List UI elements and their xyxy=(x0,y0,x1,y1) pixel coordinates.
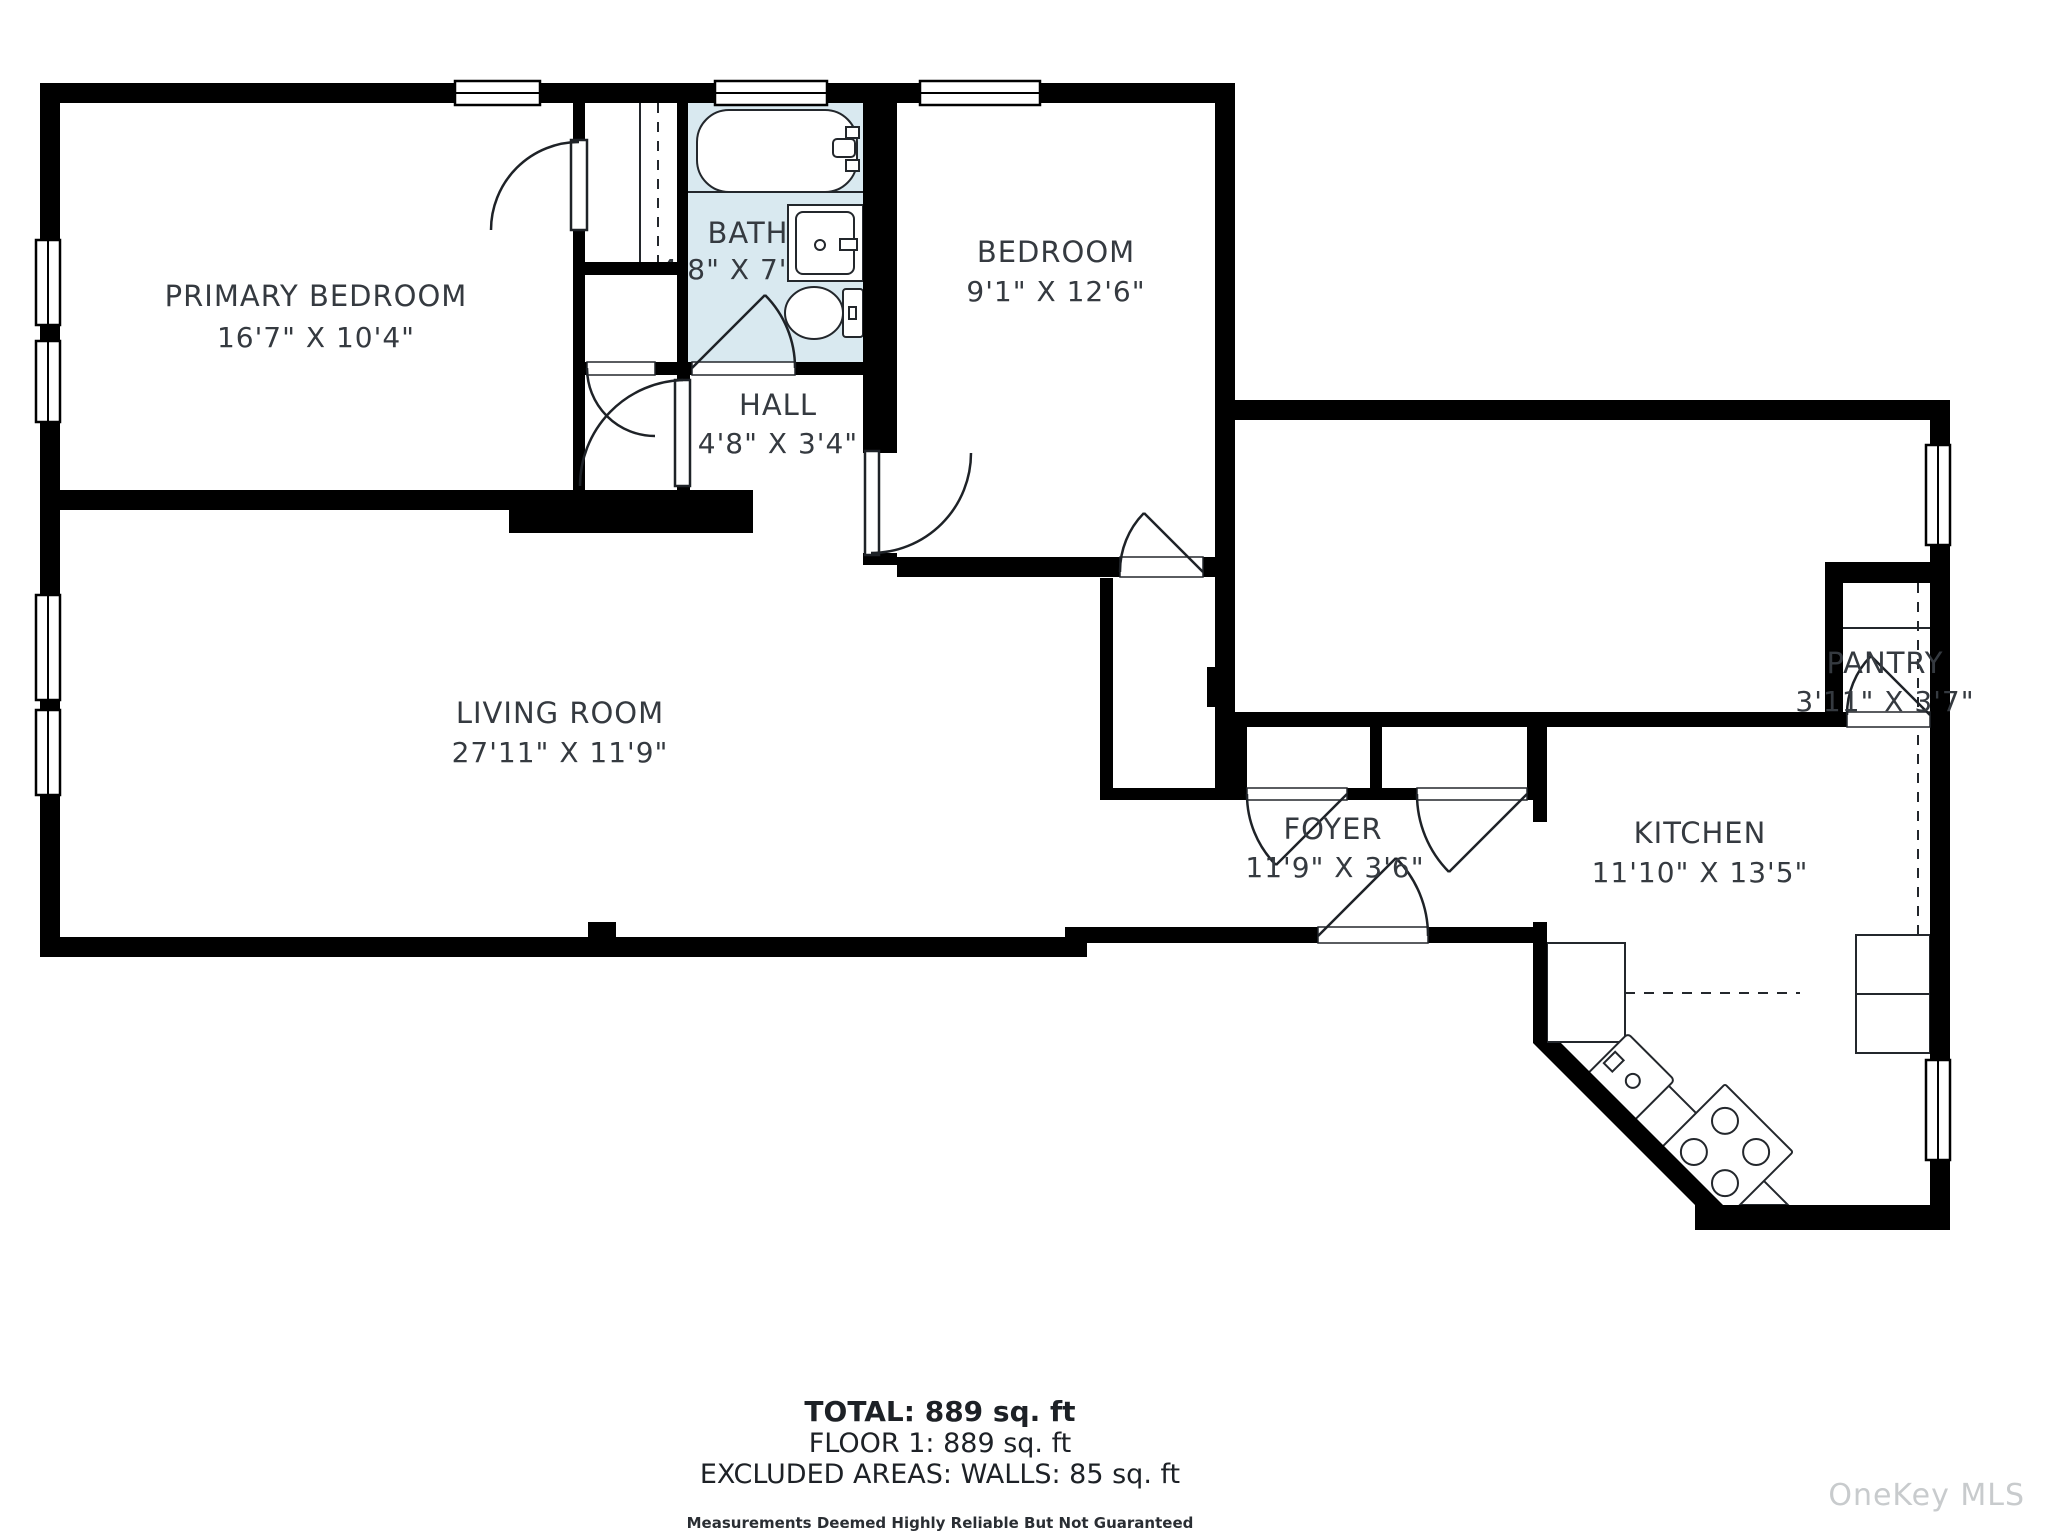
door-leaf-foyer-closet-b xyxy=(1449,794,1527,872)
door-leaf-primary-bedroom xyxy=(675,380,690,486)
room-dims-bedroom: 9'1" X 12'6" xyxy=(966,275,1145,308)
bathroom-sink-icon xyxy=(788,205,863,281)
door-threshold-hall-closet xyxy=(587,362,655,375)
floor-plan: 4'8" X 7'0" xyxy=(0,0,2048,1536)
room-label-bath: BATH xyxy=(707,216,788,250)
bathtub-icon xyxy=(697,110,859,192)
floor-plan-page: 4'8" X 7'0" xyxy=(0,0,2048,1536)
room-dims-hall: 4'8" X 3'4" xyxy=(698,427,858,460)
room-dims-living-room: 27'11" X 11'9" xyxy=(452,736,669,769)
door-leaf-bedroom xyxy=(865,451,879,555)
room-labels: PRIMARY BEDROOM 16'7" X 10'4" BATH HALL … xyxy=(165,216,1975,889)
room-dims-primary-bedroom: 16'7" X 10'4" xyxy=(217,321,415,354)
room-label-bedroom: BEDROOM xyxy=(977,235,1135,269)
room-label-hall: HALL xyxy=(739,388,817,422)
window-icon xyxy=(1926,445,1950,545)
window-icon xyxy=(36,710,60,795)
room-dims-pantry: 3'11" X 3'7" xyxy=(1795,685,1974,718)
summary-disclaimer: Measurements Deemed Highly Reliable But … xyxy=(687,1514,1194,1532)
window-icon xyxy=(715,81,827,105)
toilet-icon xyxy=(785,287,863,339)
room-dims-foyer: 11'9" X 3'6" xyxy=(1245,851,1424,884)
summary-excluded: EXCLUDED AREAS: WALLS: 85 sq. ft xyxy=(700,1459,1180,1490)
door-leaf-primary-closet xyxy=(571,140,587,230)
door-threshold-entry xyxy=(1318,927,1428,943)
door-threshold-bath xyxy=(692,362,795,375)
summary-total: TOTAL: 889 sq. ft xyxy=(804,1395,1075,1428)
room-label-kitchen: KITCHEN xyxy=(1634,816,1767,850)
window-icon xyxy=(1926,1060,1950,1160)
door-arc-primary-closet xyxy=(491,142,579,230)
window-icon xyxy=(36,595,60,700)
window-icon xyxy=(36,341,60,422)
closet-lower-interior xyxy=(585,275,677,362)
door-threshold-foyer-closet-b xyxy=(1417,788,1527,800)
door-arc-bedroom xyxy=(871,453,971,553)
door-threshold-foyer-closet-a xyxy=(1247,788,1347,800)
room-label-living-room: LIVING ROOM xyxy=(456,696,664,730)
room-dims-kitchen: 11'10" X 13'5" xyxy=(1592,856,1809,889)
room-label-primary-bedroom: PRIMARY BEDROOM xyxy=(165,279,468,313)
room-label-foyer: FOYER xyxy=(1283,812,1382,846)
watermark-onekey-mls: OneKey MLS xyxy=(1828,1478,2025,1513)
window-icon xyxy=(920,81,1040,105)
window-icon xyxy=(36,240,60,325)
summary-floor1: FLOOR 1: 889 sq. ft xyxy=(809,1428,1071,1459)
summary-block: TOTAL: 889 sq. ft FLOOR 1: 889 sq. ft EX… xyxy=(687,1395,1194,1532)
window-icon xyxy=(455,81,540,105)
room-label-pantry: PANTRY xyxy=(1827,646,1944,680)
